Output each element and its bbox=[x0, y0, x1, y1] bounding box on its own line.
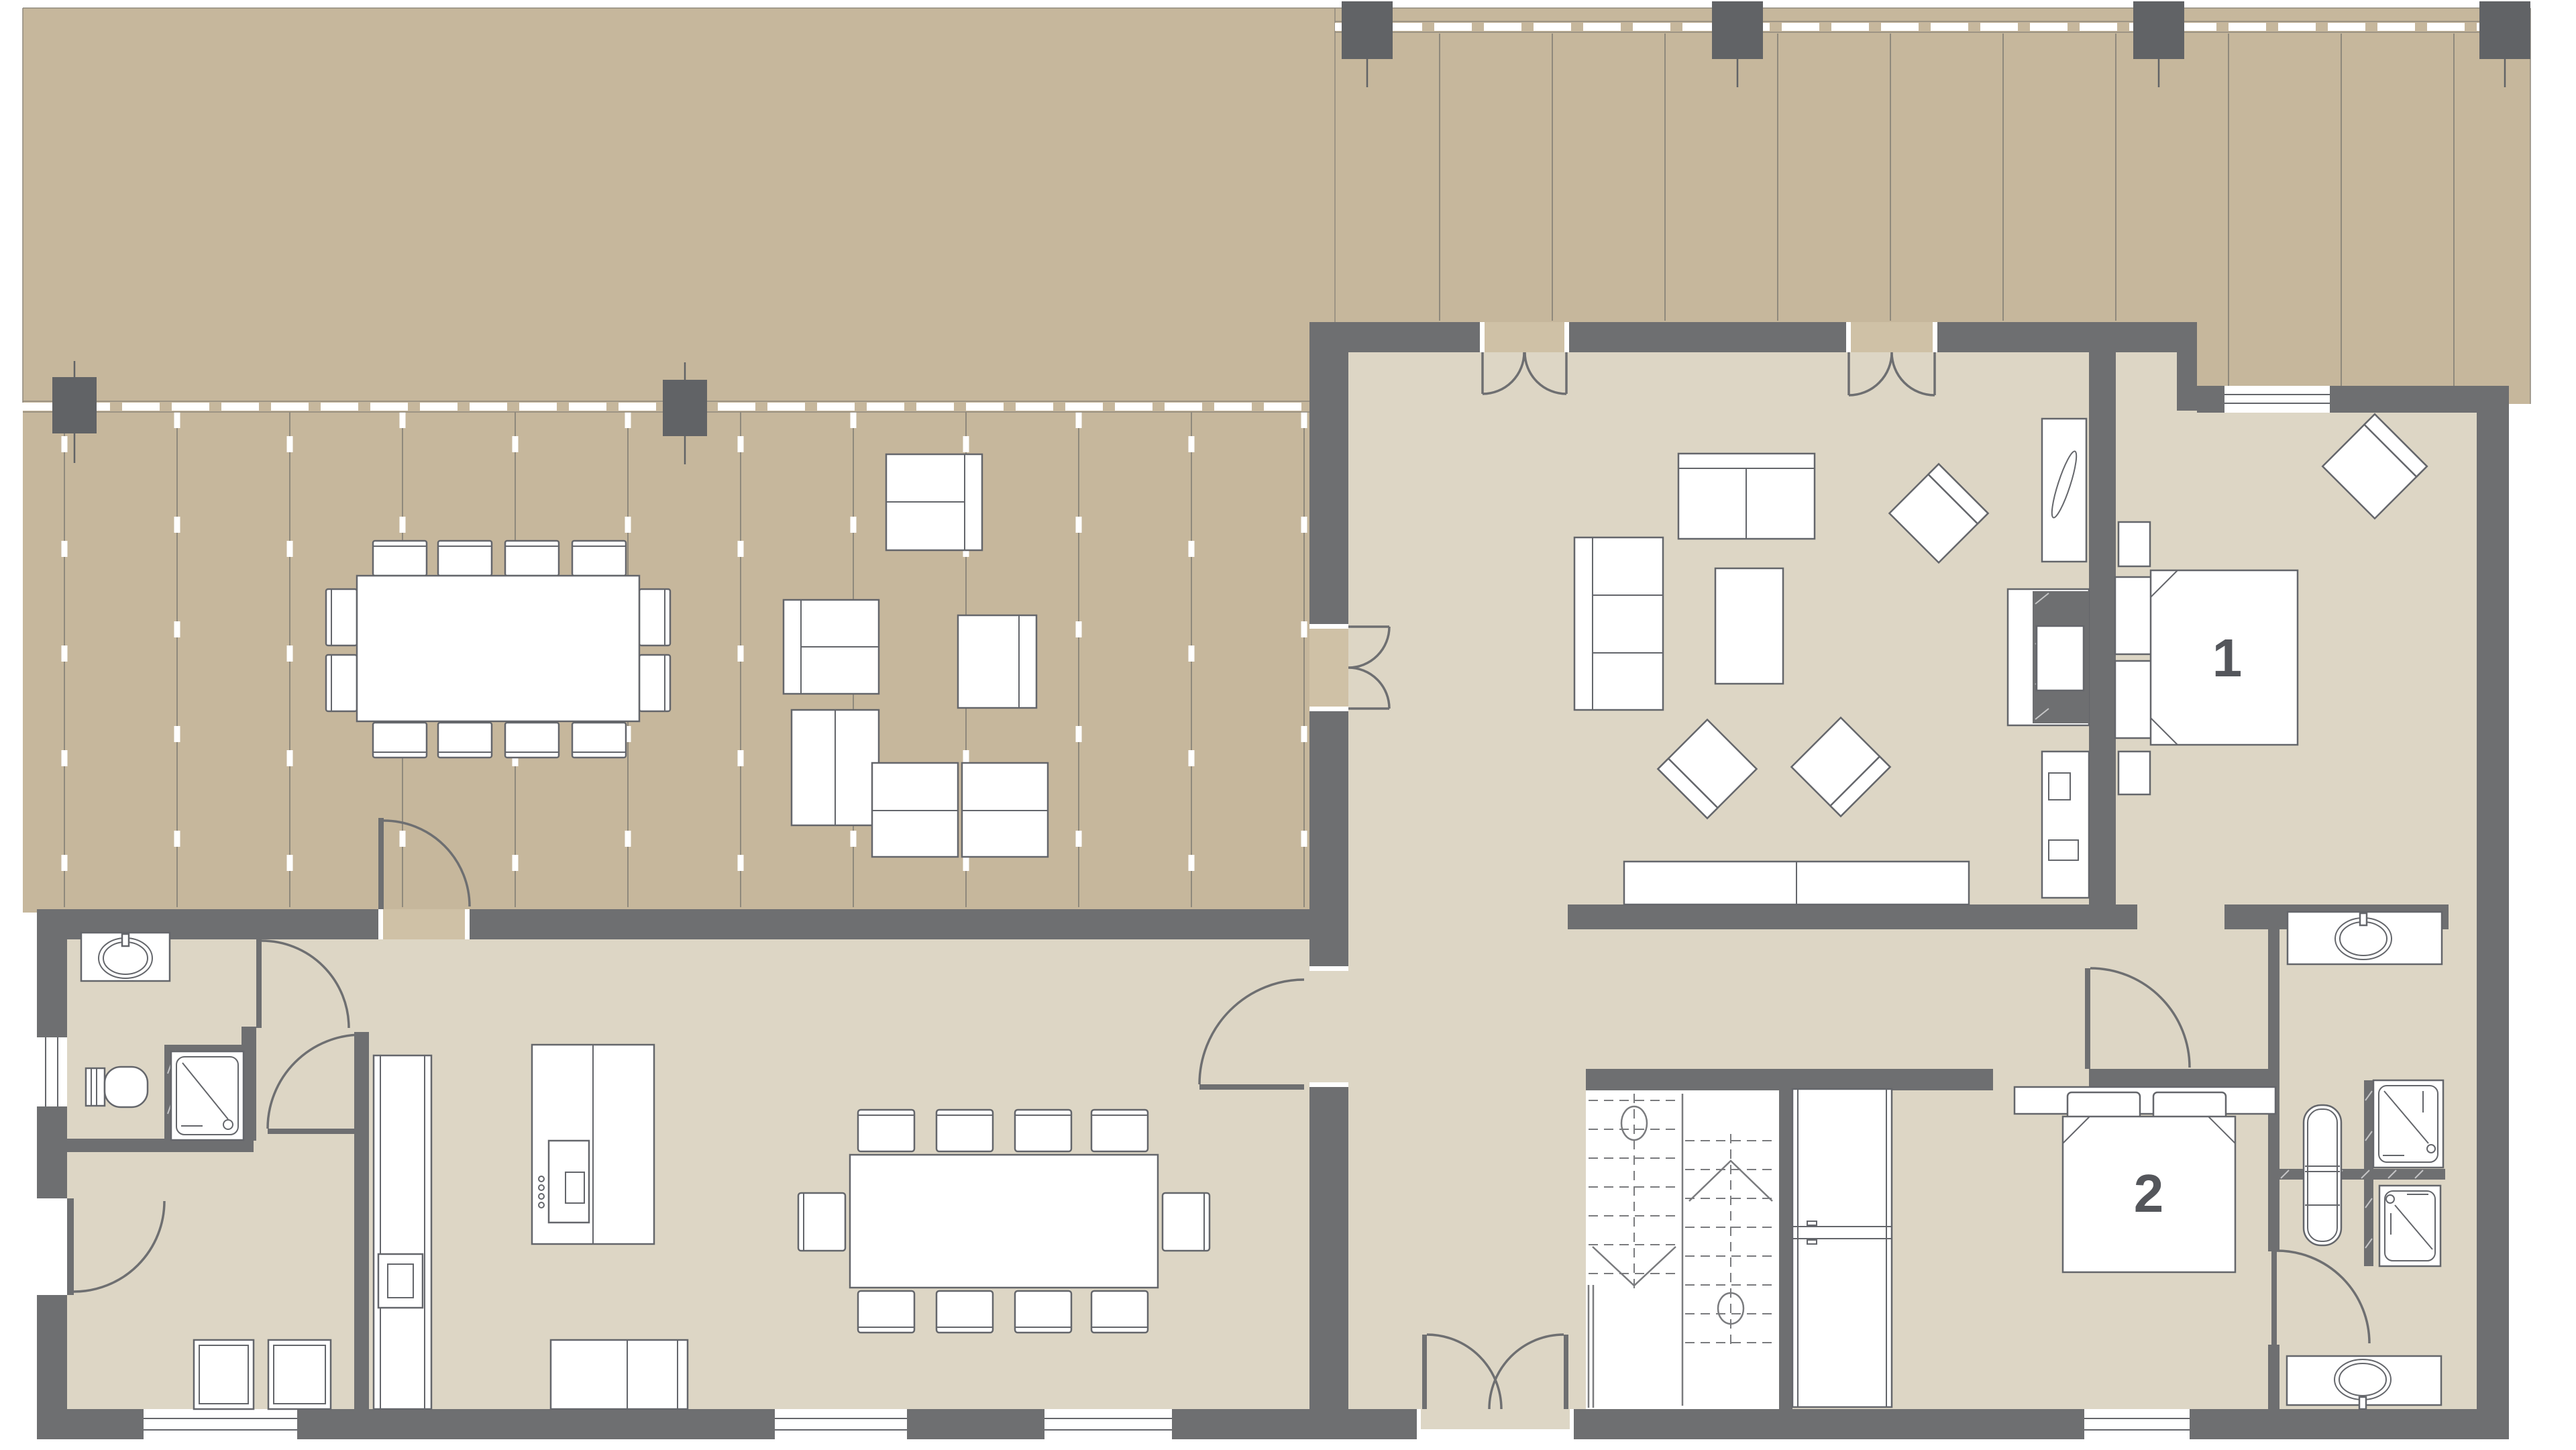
roof-post bbox=[1342, 1, 1393, 59]
pantry-wall bbox=[354, 1032, 369, 1409]
deck-pergola bbox=[23, 403, 1335, 913]
side-door-opening bbox=[37, 1198, 67, 1295]
cooktop bbox=[549, 1141, 589, 1223]
tall-pantry-unit bbox=[374, 1055, 431, 1409]
bathtub bbox=[2304, 1105, 2341, 1245]
bedroom-1-window bbox=[2224, 386, 2330, 413]
headboard bbox=[2015, 1087, 2275, 1114]
shower-left bbox=[171, 1051, 244, 1140]
wardrobe bbox=[1792, 1089, 1892, 1407]
built-in-oven bbox=[378, 1254, 423, 1308]
toilet bbox=[86, 1067, 148, 1107]
entry-threshold bbox=[1417, 1409, 1574, 1439]
pergola-post bbox=[52, 377, 97, 433]
outdoor-armchair bbox=[958, 615, 1036, 708]
outdoor-dining-table bbox=[357, 576, 639, 721]
west-door-sill bbox=[1309, 624, 1348, 711]
shower-1 bbox=[2373, 1080, 2443, 1168]
shower-2 bbox=[2379, 1186, 2440, 1266]
floor-plan-svg: 1 2 bbox=[0, 0, 2576, 1450]
deck-door-sill bbox=[378, 909, 470, 939]
pergola-post bbox=[663, 380, 707, 436]
cabinet bbox=[2042, 419, 2086, 562]
deck-canopy bbox=[23, 8, 1335, 403]
bedroom-2-window bbox=[2084, 1409, 2190, 1439]
staircase bbox=[1586, 1090, 1779, 1409]
wing-door-threshold bbox=[1309, 966, 1348, 1087]
fireplace bbox=[2008, 589, 2089, 725]
kitchen-sideboard bbox=[551, 1340, 688, 1409]
headboard-cushion bbox=[2115, 661, 2152, 738]
faucet bbox=[122, 934, 129, 946]
nightstand bbox=[2118, 522, 2150, 566]
floor-plan-canvas: 1 2 bbox=[0, 0, 2576, 1450]
fireplace-wall bbox=[2089, 352, 2116, 929]
faucet bbox=[2360, 913, 2367, 925]
headboard-cushion bbox=[2115, 577, 2152, 654]
dining-table bbox=[850, 1155, 1158, 1288]
coffee-table bbox=[1715, 568, 1783, 684]
roof-post bbox=[1712, 1, 1763, 59]
bedroom-2-label: 2 bbox=[2134, 1163, 2164, 1223]
sectional-sofa bbox=[1574, 537, 1663, 710]
roof-post bbox=[2479, 1, 2530, 59]
faucet bbox=[2359, 1397, 2366, 1409]
bedroom-1-label: 1 bbox=[2212, 628, 2243, 688]
bathroom-left-window bbox=[37, 1037, 67, 1106]
french-door-1-sill bbox=[1480, 322, 1569, 352]
stool bbox=[194, 1340, 254, 1409]
stool bbox=[268, 1340, 331, 1409]
nightstand bbox=[2118, 752, 2150, 794]
pergola-beam-right bbox=[1335, 21, 2530, 32]
french-door-2-sill bbox=[1846, 322, 1937, 352]
roof-post bbox=[2133, 1, 2184, 59]
